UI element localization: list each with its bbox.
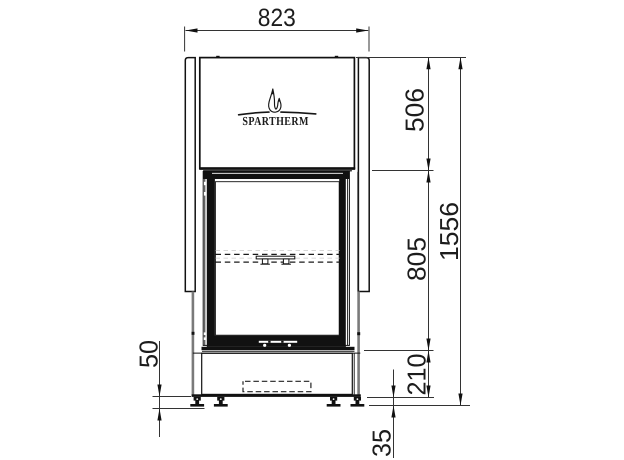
svg-text:805: 805 — [402, 237, 432, 281]
svg-text:1556: 1556 — [434, 202, 464, 261]
svg-text:35: 35 — [366, 429, 396, 457]
svg-text:SPARTHERM: SPARTHERM — [242, 114, 309, 128]
svg-text:506: 506 — [400, 88, 430, 132]
svg-text:823: 823 — [258, 4, 296, 32]
svg-text:50: 50 — [133, 340, 163, 368]
svg-text:210: 210 — [402, 354, 432, 396]
